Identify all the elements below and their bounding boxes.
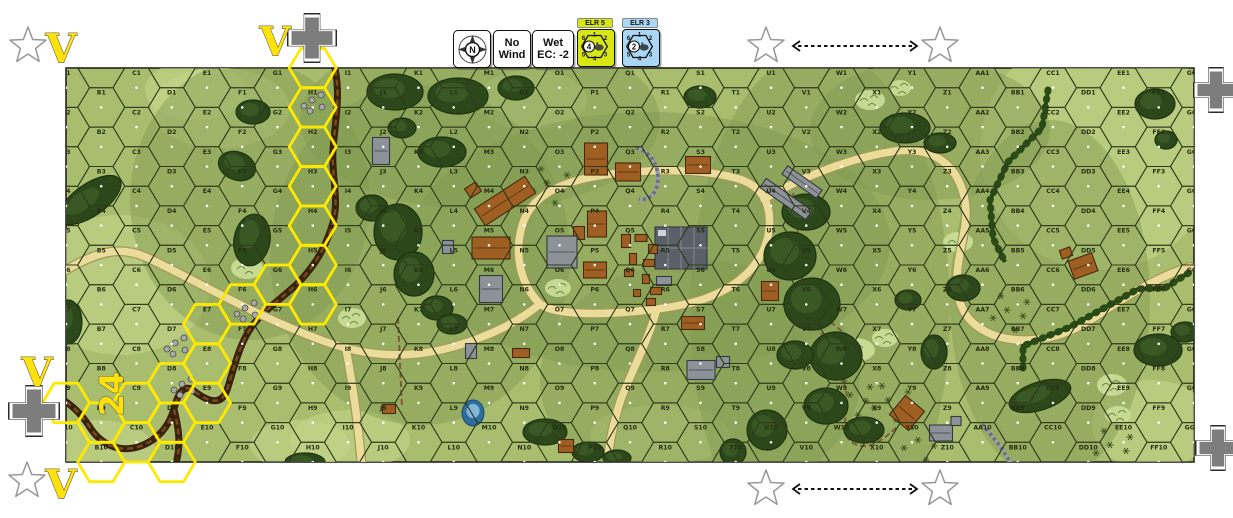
grain-mark bbox=[1115, 462, 1122, 468]
woods bbox=[684, 86, 716, 108]
woods-inner bbox=[688, 89, 706, 101]
hex-label: G3 bbox=[273, 149, 282, 156]
hex-label: U9 bbox=[766, 385, 775, 392]
north-compass-counter[interactable]: N bbox=[453, 30, 491, 68]
hex-center-dot bbox=[593, 382, 596, 385]
hex-center-dot bbox=[1193, 362, 1196, 365]
hex-label: X5 bbox=[872, 247, 881, 254]
hex-label: CC7 bbox=[1046, 306, 1059, 313]
hex-center-dot bbox=[382, 185, 385, 188]
hex-label: X4 bbox=[872, 208, 882, 215]
hex-label: V5 bbox=[802, 247, 811, 254]
hex-label: N4 bbox=[520, 208, 530, 215]
hex-label: H7 bbox=[308, 326, 317, 333]
hex-label: FF1 bbox=[1152, 90, 1165, 97]
hex-label: D10 bbox=[165, 444, 179, 451]
hex-center-dot bbox=[488, 362, 491, 365]
hex-label: DD1 bbox=[1081, 90, 1096, 97]
hex-label: K3 bbox=[414, 149, 423, 156]
hex-label: I8 bbox=[345, 346, 352, 353]
objective-star-marker[interactable] bbox=[922, 27, 958, 61]
hex-center-dot bbox=[981, 205, 984, 208]
hex-center-dot bbox=[911, 283, 914, 286]
hex-center-dot bbox=[875, 303, 878, 306]
hex-label: N6 bbox=[520, 287, 529, 294]
hex-center-dot bbox=[488, 86, 491, 89]
objective-star-marker[interactable] bbox=[748, 27, 784, 61]
woods-inner bbox=[374, 79, 405, 99]
hex-center-dot bbox=[488, 283, 491, 286]
hex-label: X9 bbox=[872, 405, 881, 412]
hex-label: AA3 bbox=[976, 149, 990, 156]
hex-center-dot bbox=[840, 283, 843, 286]
hex-center-dot bbox=[1193, 323, 1196, 326]
elr-allied-counter[interactable]: 6 1 2 3 4 5 4 bbox=[577, 29, 615, 67]
hex-center-dot bbox=[629, 244, 632, 247]
hex-label: X8 bbox=[872, 366, 881, 373]
hex-center-dot bbox=[981, 126, 984, 129]
hex-center-dot bbox=[558, 402, 561, 405]
building-stone bbox=[480, 276, 503, 303]
cross-core bbox=[1198, 72, 1233, 109]
hex-center-dot bbox=[1193, 205, 1196, 208]
hex-label: L1 bbox=[450, 90, 458, 97]
hex-label: L10 bbox=[447, 444, 460, 451]
hex-center-dot bbox=[311, 146, 314, 149]
hex-label: A9 bbox=[61, 385, 70, 392]
hex-center-dot bbox=[417, 441, 420, 444]
hex-center-dot bbox=[488, 165, 491, 168]
hex-center-dot bbox=[840, 362, 843, 365]
hex-center-dot bbox=[911, 205, 914, 208]
hex-center-dot bbox=[417, 165, 420, 168]
hex-label: M6 bbox=[484, 267, 494, 274]
hex-label: EE9 bbox=[1117, 385, 1130, 392]
hex-label: Q8 bbox=[625, 346, 635, 353]
hex-center-dot bbox=[1016, 382, 1019, 385]
hex-center-dot bbox=[1157, 146, 1160, 149]
hex-center-dot bbox=[946, 146, 949, 149]
hex-label: CC10 bbox=[1044, 425, 1062, 432]
hex-label: J3 bbox=[379, 169, 387, 176]
hex-center-dot bbox=[1087, 146, 1090, 149]
hex-label: X6 bbox=[872, 287, 881, 294]
hex-label: U6 bbox=[766, 267, 775, 274]
hex-center-dot bbox=[523, 461, 526, 464]
hex-label: S1 bbox=[696, 70, 705, 77]
hex-label: R3 bbox=[661, 169, 670, 176]
hex-label: K10 bbox=[412, 425, 426, 432]
hex-center-dot bbox=[699, 323, 702, 326]
hex-center-dot bbox=[1016, 461, 1019, 464]
hex-label: AA6 bbox=[976, 267, 990, 274]
hex-label: F4 bbox=[238, 208, 247, 215]
hex-label: BB7 bbox=[1011, 326, 1025, 333]
hex-center-dot bbox=[593, 106, 596, 109]
hex-label: Z1 bbox=[943, 90, 952, 97]
hex-label: CC9 bbox=[1046, 385, 1059, 392]
hex-label: AA9 bbox=[976, 385, 990, 392]
hex-label: X3 bbox=[872, 169, 881, 176]
hex-center-dot bbox=[558, 165, 561, 168]
rock bbox=[181, 335, 187, 341]
hex-label: M1 bbox=[484, 70, 494, 77]
hex-label: J6 bbox=[379, 287, 387, 294]
hex-label: EE7 bbox=[1117, 306, 1130, 313]
hex-label: O5 bbox=[555, 228, 565, 235]
german-cross-marker[interactable] bbox=[1195, 425, 1233, 471]
svg-text:3: 3 bbox=[604, 53, 608, 59]
hex-center-dot bbox=[311, 185, 314, 188]
hex-label: W6 bbox=[836, 267, 847, 274]
hex-label: D3 bbox=[167, 169, 176, 176]
hex-label: S4 bbox=[696, 188, 705, 195]
hex-center-dot bbox=[840, 86, 843, 89]
woods-inner bbox=[392, 121, 407, 132]
hex-label: GG7 bbox=[1187, 306, 1201, 313]
hex-label: EE10 bbox=[1115, 425, 1133, 432]
rock bbox=[234, 311, 240, 317]
hex-label: Y4 bbox=[907, 188, 917, 195]
hex-center-dot bbox=[946, 421, 949, 424]
rock bbox=[179, 381, 185, 387]
hex-label: P1 bbox=[590, 90, 599, 97]
hex-center-dot bbox=[382, 146, 385, 149]
hex-center-dot bbox=[1122, 402, 1125, 405]
hex-label: U1 bbox=[766, 70, 775, 77]
hex-label: Y7 bbox=[907, 306, 917, 313]
hex-label: A10 bbox=[59, 425, 73, 432]
woods bbox=[810, 332, 862, 380]
hex-center-dot bbox=[417, 402, 420, 405]
hex-center-dot bbox=[523, 343, 526, 346]
hex-center-dot bbox=[241, 264, 244, 267]
hex-center-dot bbox=[805, 106, 808, 109]
hex-center-dot bbox=[382, 106, 385, 109]
hex-label: AA7 bbox=[976, 306, 990, 313]
hex-label: K1 bbox=[414, 70, 423, 77]
building-wood bbox=[630, 254, 637, 265]
hex-label: FF7 bbox=[1152, 326, 1165, 333]
hex-center-dot bbox=[1122, 126, 1125, 129]
hex-center-dot bbox=[452, 421, 455, 424]
hex-center-dot bbox=[875, 382, 878, 385]
hex-label: BB3 bbox=[1011, 169, 1025, 176]
hex-center-dot bbox=[100, 224, 103, 227]
hex-label: Q10 bbox=[623, 425, 638, 432]
hex-label: V1 bbox=[802, 90, 811, 97]
hex-center-dot bbox=[452, 264, 455, 267]
hex-center-dot bbox=[135, 323, 138, 326]
hex-label: Z6 bbox=[943, 287, 952, 294]
hex-label: B4 bbox=[97, 208, 107, 215]
victory-letter-marker[interactable]: V bbox=[258, 19, 291, 66]
objective-star-marker[interactable] bbox=[10, 27, 46, 61]
hex-center-dot bbox=[1122, 165, 1125, 168]
hex-label: I7 bbox=[345, 306, 352, 313]
hex-label: B6 bbox=[97, 287, 106, 294]
hex-center-dot bbox=[135, 244, 138, 247]
rock bbox=[307, 108, 313, 114]
hex-center-dot bbox=[805, 303, 808, 306]
hex-center-dot bbox=[629, 362, 632, 365]
hex-center-dot bbox=[276, 402, 279, 405]
hex-label: AA2 bbox=[976, 109, 990, 116]
hex-center-dot bbox=[1052, 362, 1055, 365]
hex-label: M9 bbox=[484, 385, 494, 392]
hex-center-dot bbox=[946, 461, 949, 464]
hex-label: S9 bbox=[696, 385, 705, 392]
brush-patch bbox=[1105, 406, 1131, 424]
hex-center-dot bbox=[100, 303, 103, 306]
hex-label: A7 bbox=[61, 306, 70, 313]
hex-label: G6 bbox=[273, 267, 282, 274]
hex-label: B5 bbox=[97, 247, 106, 254]
hex-label: S8 bbox=[696, 346, 705, 353]
hex-center-dot bbox=[170, 421, 173, 424]
hex-center-dot bbox=[382, 343, 385, 346]
hex-label: GG8 bbox=[1187, 346, 1201, 353]
hex-label: BB1 bbox=[1011, 90, 1025, 97]
hex-center-dot bbox=[840, 402, 843, 405]
hex-label: BB9 bbox=[1011, 405, 1025, 412]
hex-label: C3 bbox=[132, 149, 141, 156]
german-cross-marker[interactable] bbox=[1193, 67, 1233, 113]
hex-label: P10 bbox=[588, 444, 602, 451]
hex-center-dot bbox=[488, 205, 491, 208]
hex-center-dot bbox=[664, 343, 667, 346]
hex-label: E1 bbox=[203, 70, 212, 77]
hex-center-dot bbox=[347, 165, 350, 168]
hex-center-dot bbox=[1122, 205, 1125, 208]
hex-center-dot bbox=[1122, 86, 1125, 89]
hex-label: V8 bbox=[802, 366, 811, 373]
hex-center-dot bbox=[770, 323, 773, 326]
hex-label: V7 bbox=[802, 326, 811, 333]
hex-center-dot bbox=[1193, 165, 1196, 168]
hex-label: CC4 bbox=[1046, 188, 1060, 195]
woods-inner bbox=[1140, 338, 1166, 356]
hex-center-dot bbox=[206, 126, 209, 129]
hex-label: S10 bbox=[694, 425, 708, 432]
hex-label: Q1 bbox=[625, 70, 635, 77]
objective-star-marker[interactable] bbox=[922, 470, 958, 504]
hex-label: H6 bbox=[308, 287, 317, 294]
woods bbox=[394, 252, 434, 296]
hex-center-dot bbox=[523, 106, 526, 109]
hex-label: DD2 bbox=[1081, 129, 1096, 136]
hex-label: L9 bbox=[450, 405, 458, 412]
hex-center-dot bbox=[311, 461, 314, 464]
building-footprint bbox=[635, 235, 647, 242]
building-stone bbox=[466, 344, 477, 359]
hex-center-dot bbox=[135, 441, 138, 444]
hex-label: N7 bbox=[520, 326, 529, 333]
hex-label: U3 bbox=[766, 149, 775, 156]
elr-allied-value: 4 bbox=[587, 42, 592, 51]
hex-center-dot bbox=[417, 205, 420, 208]
hex-label: Q2 bbox=[625, 109, 635, 116]
vassal-map-window[interactable]: A1A2A3A4A5A6A7A8A9A10B1B2B3B4B5B6B7B8B9B… bbox=[0, 0, 1233, 518]
hex-center-dot bbox=[65, 283, 68, 286]
hex-center-dot bbox=[1087, 224, 1090, 227]
hex-label: GG6 bbox=[1187, 267, 1201, 274]
range-arrow bbox=[793, 41, 917, 51]
objective-star-marker[interactable] bbox=[748, 470, 784, 504]
hex-label: N9 bbox=[520, 405, 529, 412]
hex-center-dot bbox=[699, 244, 702, 247]
hex-center-dot bbox=[311, 421, 314, 424]
hex-label: DD5 bbox=[1081, 247, 1096, 254]
hex-center-dot bbox=[523, 185, 526, 188]
elr-axis-counter[interactable]: 6 1 2 3 4 5 2 bbox=[622, 29, 660, 67]
building-footprint bbox=[951, 417, 961, 426]
hex-center-dot bbox=[65, 441, 68, 444]
hex-center-dot bbox=[805, 224, 808, 227]
hex-label: M2 bbox=[484, 109, 494, 116]
building-footprint bbox=[466, 344, 477, 359]
hex-center-dot bbox=[276, 323, 279, 326]
wind-counter[interactable]: No Wind bbox=[493, 30, 531, 68]
hex-label: L2 bbox=[450, 129, 458, 136]
hex-center-dot bbox=[911, 441, 914, 444]
building-footprint bbox=[657, 277, 672, 286]
hex-center-dot bbox=[946, 264, 949, 267]
hex-center-dot bbox=[206, 244, 209, 247]
elr-allied-dial: 6 1 2 3 4 5 4 bbox=[578, 30, 611, 63]
hex-center-dot bbox=[452, 461, 455, 464]
hex-label: I1 bbox=[345, 70, 352, 77]
hex-center-dot bbox=[558, 323, 561, 326]
hex-center-dot bbox=[382, 264, 385, 267]
hex-center-dot bbox=[1016, 106, 1019, 109]
hex-label: N5 bbox=[520, 247, 529, 254]
hex-label: J2 bbox=[379, 129, 387, 136]
hex-label: P6 bbox=[590, 287, 599, 294]
hex-center-dot bbox=[523, 224, 526, 227]
hex-center-dot bbox=[452, 224, 455, 227]
hex-label: R9 bbox=[661, 405, 670, 412]
hex-label: DD7 bbox=[1081, 326, 1096, 333]
hex-center-dot bbox=[206, 86, 209, 89]
hex-label: Z8 bbox=[943, 366, 952, 373]
hex-label: R6 bbox=[661, 287, 670, 294]
hex-center-dot bbox=[805, 421, 808, 424]
hex-center-dot bbox=[1052, 126, 1055, 129]
game-board-svg[interactable]: A1A2A3A4A5A6A7A8A9A10B1B2B3B4B5B6B7B8B9B… bbox=[0, 0, 1233, 518]
hex-center-dot bbox=[241, 303, 244, 306]
rock bbox=[319, 104, 325, 110]
hex-center-dot bbox=[593, 343, 596, 346]
hex-label: E5 bbox=[203, 228, 212, 235]
hex-center-dot bbox=[417, 126, 420, 129]
hex-label: G8 bbox=[273, 346, 282, 353]
hex-center-dot bbox=[452, 106, 455, 109]
hex-center-dot bbox=[664, 106, 667, 109]
hex-center-dot bbox=[629, 441, 632, 444]
hex-center-dot bbox=[629, 126, 632, 129]
hex-center-dot bbox=[488, 244, 491, 247]
hex-label: L3 bbox=[450, 169, 458, 176]
hex-label: M4 bbox=[484, 188, 495, 195]
hex-label: W10 bbox=[834, 425, 850, 432]
hex-center-dot bbox=[840, 441, 843, 444]
hex-label: L7 bbox=[450, 326, 458, 333]
hex-label: EE1 bbox=[1117, 70, 1130, 77]
hex-center-dot bbox=[488, 323, 491, 326]
victory-letter-marker[interactable]: V bbox=[20, 350, 53, 397]
hex-label: Z7 bbox=[943, 326, 952, 333]
hex-center-dot bbox=[1016, 224, 1019, 227]
victory-letter-marker[interactable]: V bbox=[44, 462, 77, 509]
hex-center-dot bbox=[1157, 106, 1160, 109]
hex-center-dot bbox=[382, 461, 385, 464]
objective-star-marker[interactable] bbox=[9, 462, 45, 496]
hex-center-dot bbox=[488, 441, 491, 444]
hex-center-dot bbox=[981, 86, 984, 89]
hex-center-dot bbox=[311, 106, 314, 109]
victory-letter-marker[interactable]: V bbox=[44, 26, 77, 73]
hex-center-dot bbox=[241, 146, 244, 149]
hex-center-dot bbox=[241, 461, 244, 464]
woods bbox=[285, 453, 325, 471]
hex-label: W7 bbox=[836, 306, 847, 313]
hex-label: DD3 bbox=[1081, 169, 1096, 176]
hex-label: C2 bbox=[132, 109, 141, 116]
hex-label: GG3 bbox=[1187, 149, 1201, 156]
hex-label: FF2 bbox=[1152, 129, 1165, 136]
hex-label: H4 bbox=[308, 208, 318, 215]
hex-center-dot bbox=[347, 244, 350, 247]
hex-label: T9 bbox=[731, 405, 740, 412]
rock bbox=[171, 387, 177, 393]
hex-label: C10 bbox=[130, 425, 144, 432]
hex-center-dot bbox=[629, 165, 632, 168]
hex-label: CC3 bbox=[1046, 149, 1059, 156]
hex-center-dot bbox=[699, 165, 702, 168]
weather-counter[interactable]: Wet EC: -2 bbox=[532, 30, 574, 68]
hex-label: A5 bbox=[61, 228, 70, 235]
hex-label: L4 bbox=[450, 208, 459, 215]
rock bbox=[242, 305, 248, 311]
hex-label: Y6 bbox=[907, 267, 917, 274]
hex-center-dot bbox=[593, 185, 596, 188]
hex-center-dot bbox=[100, 421, 103, 424]
hex-label: D5 bbox=[167, 247, 176, 254]
hex-center-dot bbox=[382, 224, 385, 227]
hex-center-dot bbox=[452, 146, 455, 149]
hex-center-dot bbox=[699, 402, 702, 405]
hex-label: A2 bbox=[61, 109, 70, 116]
hex-center-dot bbox=[347, 362, 350, 365]
hex-label: V6 bbox=[802, 287, 811, 294]
hex-label: G2 bbox=[273, 109, 282, 116]
hex-label: N1 bbox=[520, 90, 529, 97]
hex-label: J5 bbox=[379, 247, 387, 254]
hex-center-dot bbox=[629, 283, 632, 286]
hex-center-dot bbox=[734, 303, 737, 306]
hex-label: AA10 bbox=[973, 425, 992, 432]
woods bbox=[844, 417, 884, 443]
building-wood bbox=[635, 235, 647, 242]
hex-label: N2 bbox=[520, 129, 529, 136]
rock bbox=[240, 316, 246, 322]
hex-label: A3 bbox=[61, 149, 70, 156]
hex-center-dot bbox=[347, 126, 350, 129]
svg-text:2: 2 bbox=[649, 36, 653, 42]
hex-label: F7 bbox=[238, 326, 247, 333]
wind-line2: Wind bbox=[499, 49, 526, 61]
